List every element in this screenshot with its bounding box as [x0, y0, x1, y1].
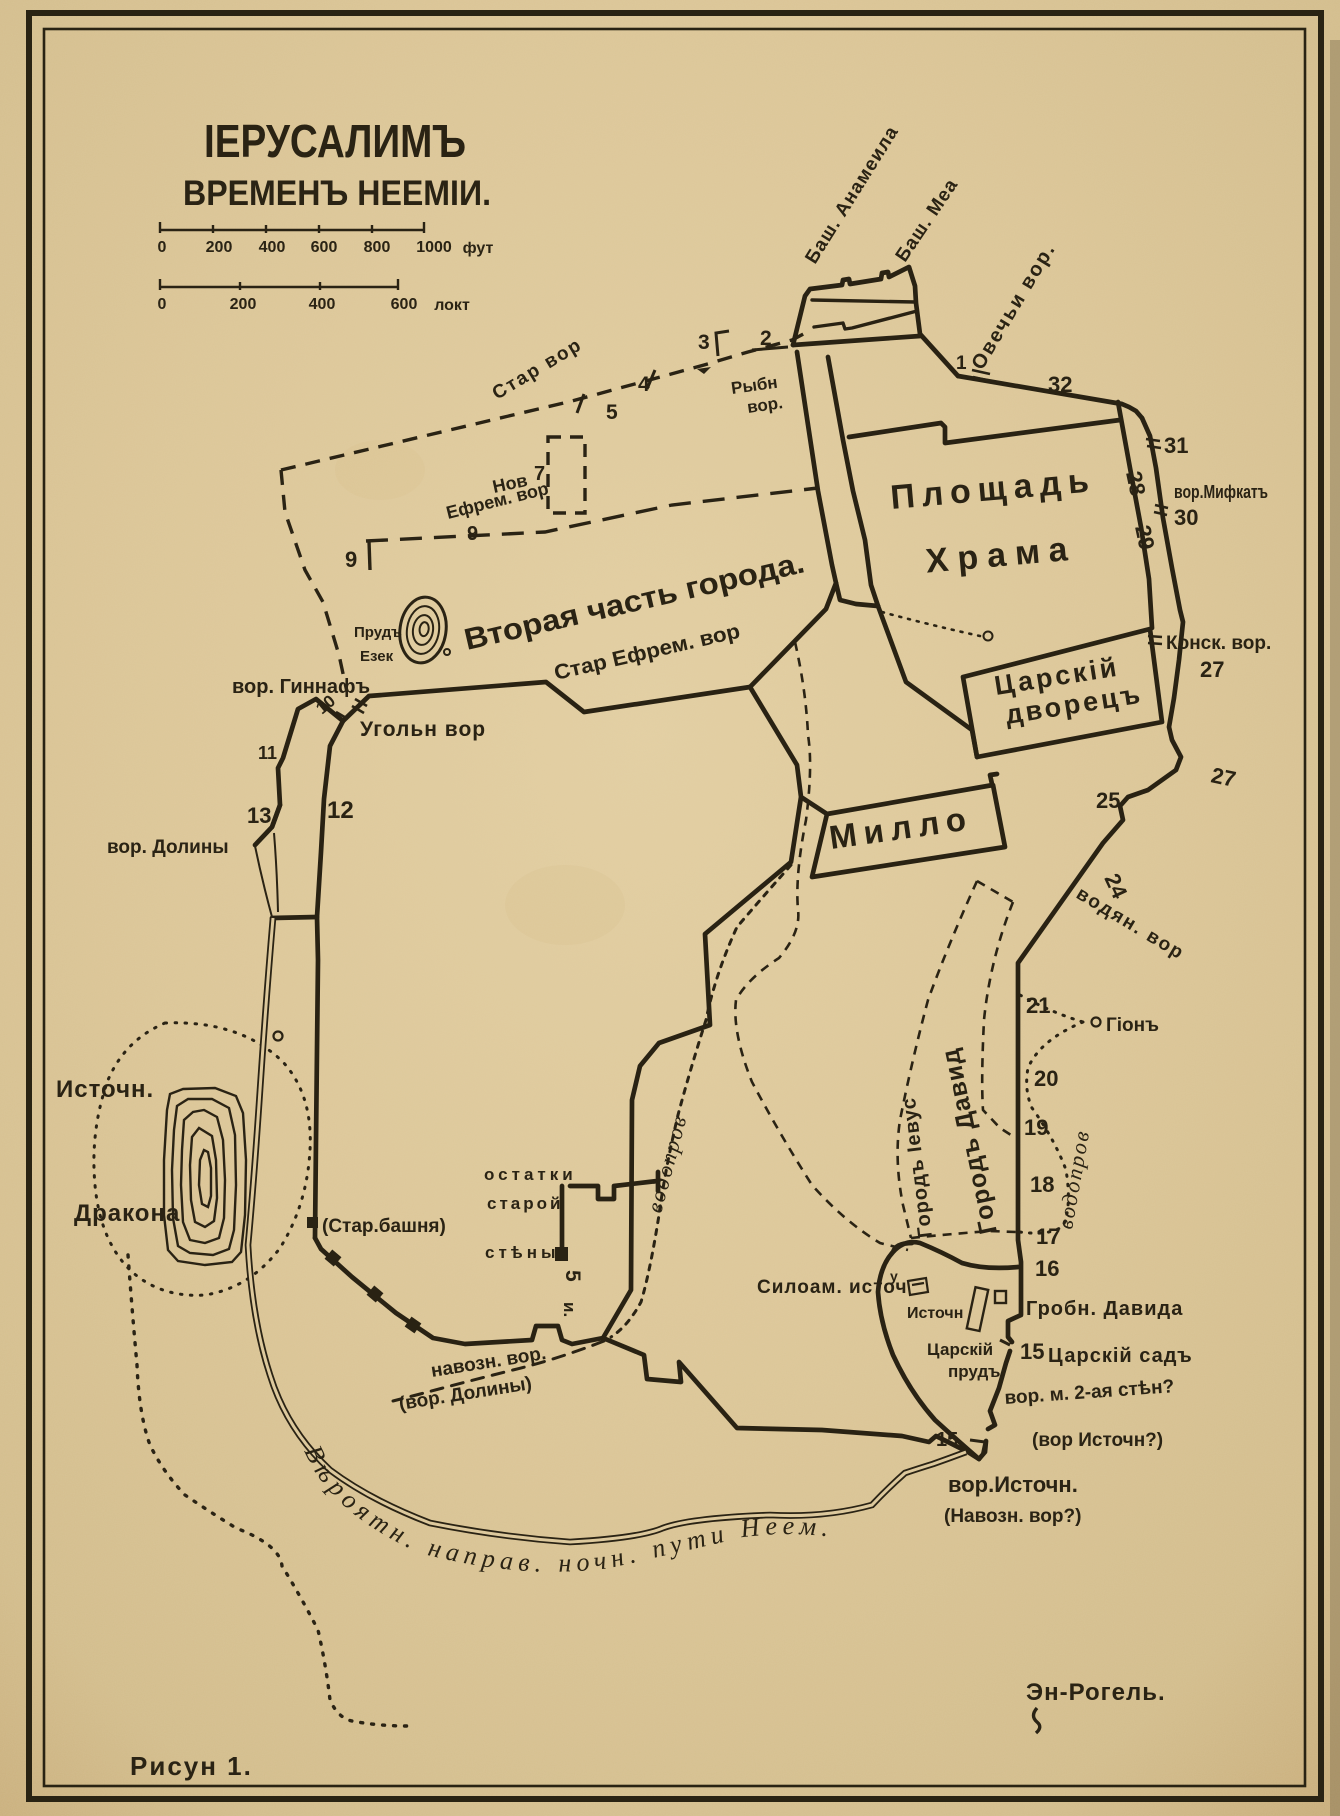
svg-text:вор. Гиннафъ: вор. Гиннафъ	[232, 676, 370, 698]
svg-text:вор. Долины: вор. Долины	[107, 837, 229, 858]
svg-text:21: 21	[1026, 993, 1050, 1018]
svg-text:2: 2	[760, 327, 772, 350]
svg-text:3: 3	[698, 331, 710, 354]
svg-text:(вор Источн?): (вор Источн?)	[1032, 1430, 1163, 1451]
svg-text:Прудъ: Прудъ	[354, 624, 402, 641]
svg-text:9: 9	[345, 547, 357, 572]
svg-text:25: 25	[1096, 788, 1120, 813]
svg-text:вор.Мифкатъ: вор.Мифкатъ	[1174, 482, 1268, 502]
svg-text:27: 27	[1209, 762, 1238, 792]
svg-text:28: 28	[1121, 469, 1151, 498]
svg-text:400: 400	[309, 296, 336, 313]
svg-text:старой: старой	[487, 1194, 563, 1213]
svg-text:Источн.: Источн.	[56, 1076, 154, 1103]
svg-text:ІЕРУСАЛИМЪ: ІЕРУСАЛИМЪ	[204, 115, 466, 167]
svg-text:15: 15	[1020, 1339, 1044, 1364]
svg-text:Силоам. источ: Силоам. источ	[757, 1277, 907, 1298]
svg-text:(Навозн. вор?): (Навозн. вор?)	[944, 1506, 1081, 1527]
svg-text:Гіонъ: Гіонъ	[1106, 1015, 1159, 1036]
svg-text:11: 11	[258, 743, 277, 763]
svg-text:20: 20	[1034, 1066, 1058, 1091]
svg-text:Рисун 1.: Рисун 1.	[130, 1751, 253, 1781]
svg-text:32: 32	[1048, 372, 1072, 397]
svg-text:0: 0	[158, 239, 167, 256]
svg-text:27: 27	[1200, 657, 1224, 682]
svg-text:(Стар.башня): (Стар.башня)	[322, 1216, 446, 1237]
svg-text:0: 0	[158, 296, 167, 313]
svg-text:прудъ: прудъ	[948, 1362, 1000, 1381]
svg-text:локт: локт	[434, 297, 470, 314]
svg-text:13: 13	[247, 803, 271, 828]
svg-text:Езек: Езек	[360, 648, 394, 665]
svg-text:Царскій садъ: Царскій садъ	[1048, 1345, 1193, 1367]
svg-text:16: 16	[1035, 1256, 1059, 1281]
svg-text:18: 18	[1030, 1172, 1054, 1197]
svg-text:600: 600	[311, 239, 338, 256]
svg-text:Дракона: Дракона	[74, 1200, 180, 1227]
svg-text:4: 4	[638, 373, 650, 396]
svg-text:1: 1	[956, 353, 967, 374]
svg-text:5: 5	[561, 1270, 584, 1282]
svg-text:вор.Источн.: вор.Источн.	[948, 1472, 1078, 1497]
svg-text:12: 12	[327, 797, 354, 824]
svg-text:и.: и.	[560, 1302, 579, 1317]
svg-text:15: 15	[936, 1429, 958, 1451]
svg-text:9: 9	[467, 523, 478, 545]
svg-text:Конск. вор.: Конск. вор.	[1166, 633, 1271, 654]
svg-text:600: 600	[391, 296, 418, 313]
svg-text:30: 30	[1174, 505, 1198, 530]
svg-text:29: 29	[1130, 523, 1160, 552]
svg-text:Угольн вор: Угольн вор	[360, 718, 486, 741]
svg-text:фут: фут	[463, 240, 494, 257]
svg-text:1000: 1000	[416, 239, 452, 256]
svg-text:Гробн. Давида: Гробн. Давида	[1026, 1298, 1183, 1320]
svg-text:200: 200	[206, 239, 233, 256]
svg-text:остатки: остатки	[484, 1165, 577, 1184]
svg-text:ВРЕМЕНЪ НЕЕМІИ.: ВРЕМЕНЪ НЕЕМІИ.	[183, 174, 491, 213]
svg-text:400: 400	[259, 239, 286, 256]
svg-text:19: 19	[1024, 1115, 1048, 1140]
svg-text:5: 5	[606, 401, 618, 424]
svg-text:стѣны: стѣны	[485, 1243, 560, 1262]
svg-text:Источн: Источн	[907, 1305, 963, 1322]
svg-text:200: 200	[230, 296, 257, 313]
svg-text:800: 800	[364, 239, 391, 256]
svg-text:Царскій: Царскій	[927, 1340, 993, 1359]
svg-text:Эн-Рогель.: Эн-Рогель.	[1026, 1679, 1166, 1706]
svg-text:31: 31	[1164, 433, 1188, 458]
